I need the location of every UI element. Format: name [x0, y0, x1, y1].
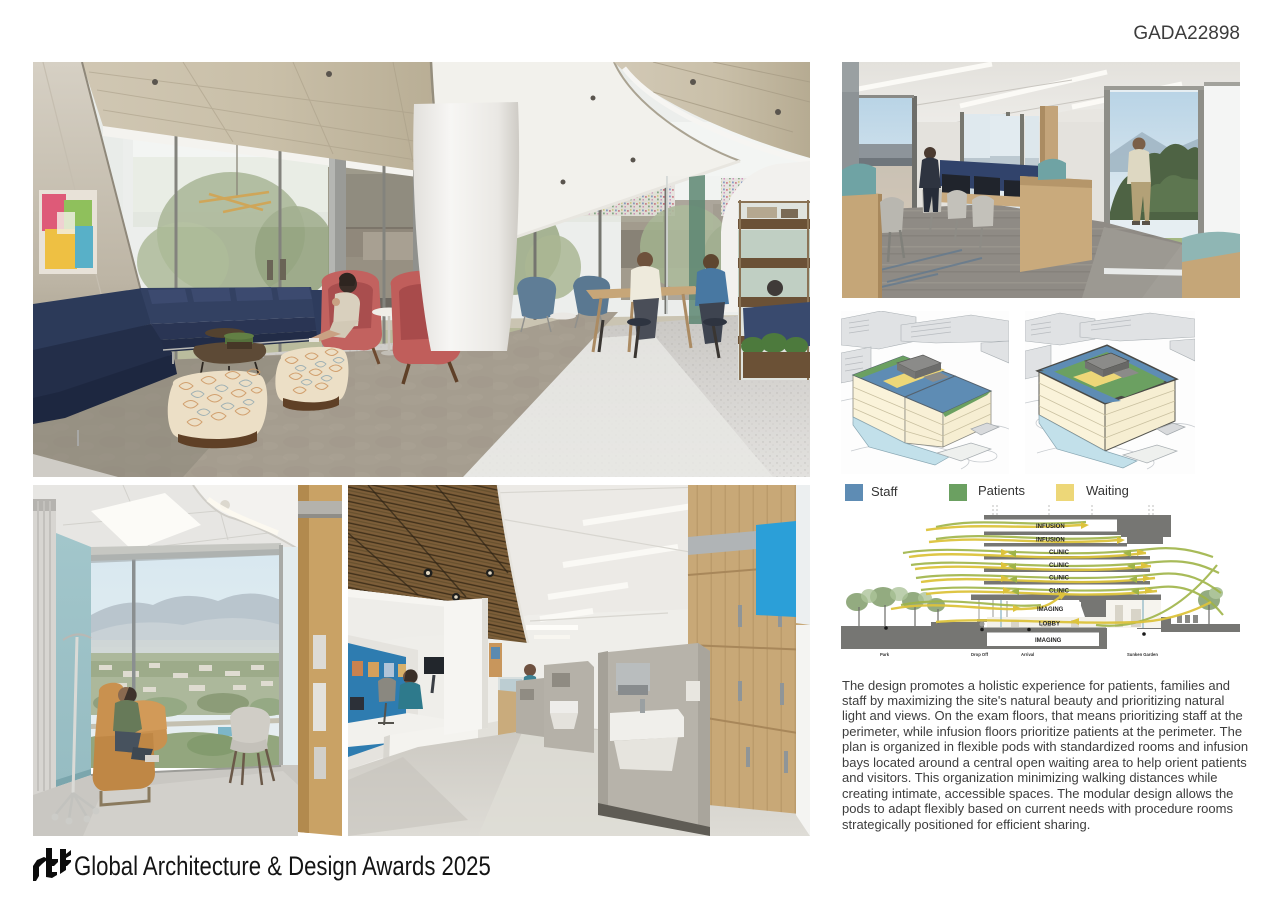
svg-text:IMAGING: IMAGING	[1035, 638, 1062, 644]
svg-text:CLINIC: CLINIC	[1049, 589, 1070, 595]
svg-text:CLINIC: CLINIC	[1049, 563, 1070, 569]
svg-text:CLINIC: CLINIC	[1049, 550, 1070, 556]
svg-text:Arrival: Arrival	[1021, 652, 1034, 657]
svg-text:Park: Park	[880, 652, 890, 657]
svg-text:INFUSION: INFUSION	[1036, 524, 1065, 530]
svg-text:LOBBY: LOBBY	[1039, 622, 1060, 628]
svg-text:IMAGING: IMAGING	[1037, 607, 1064, 613]
svg-text:Drop Off: Drop Off	[971, 652, 989, 657]
svg-text:INFUSION: INFUSION	[1036, 538, 1065, 544]
svg-text:CLINIC: CLINIC	[1049, 576, 1070, 582]
svg-text:Sunken Garden: Sunken Garden	[1127, 652, 1158, 657]
